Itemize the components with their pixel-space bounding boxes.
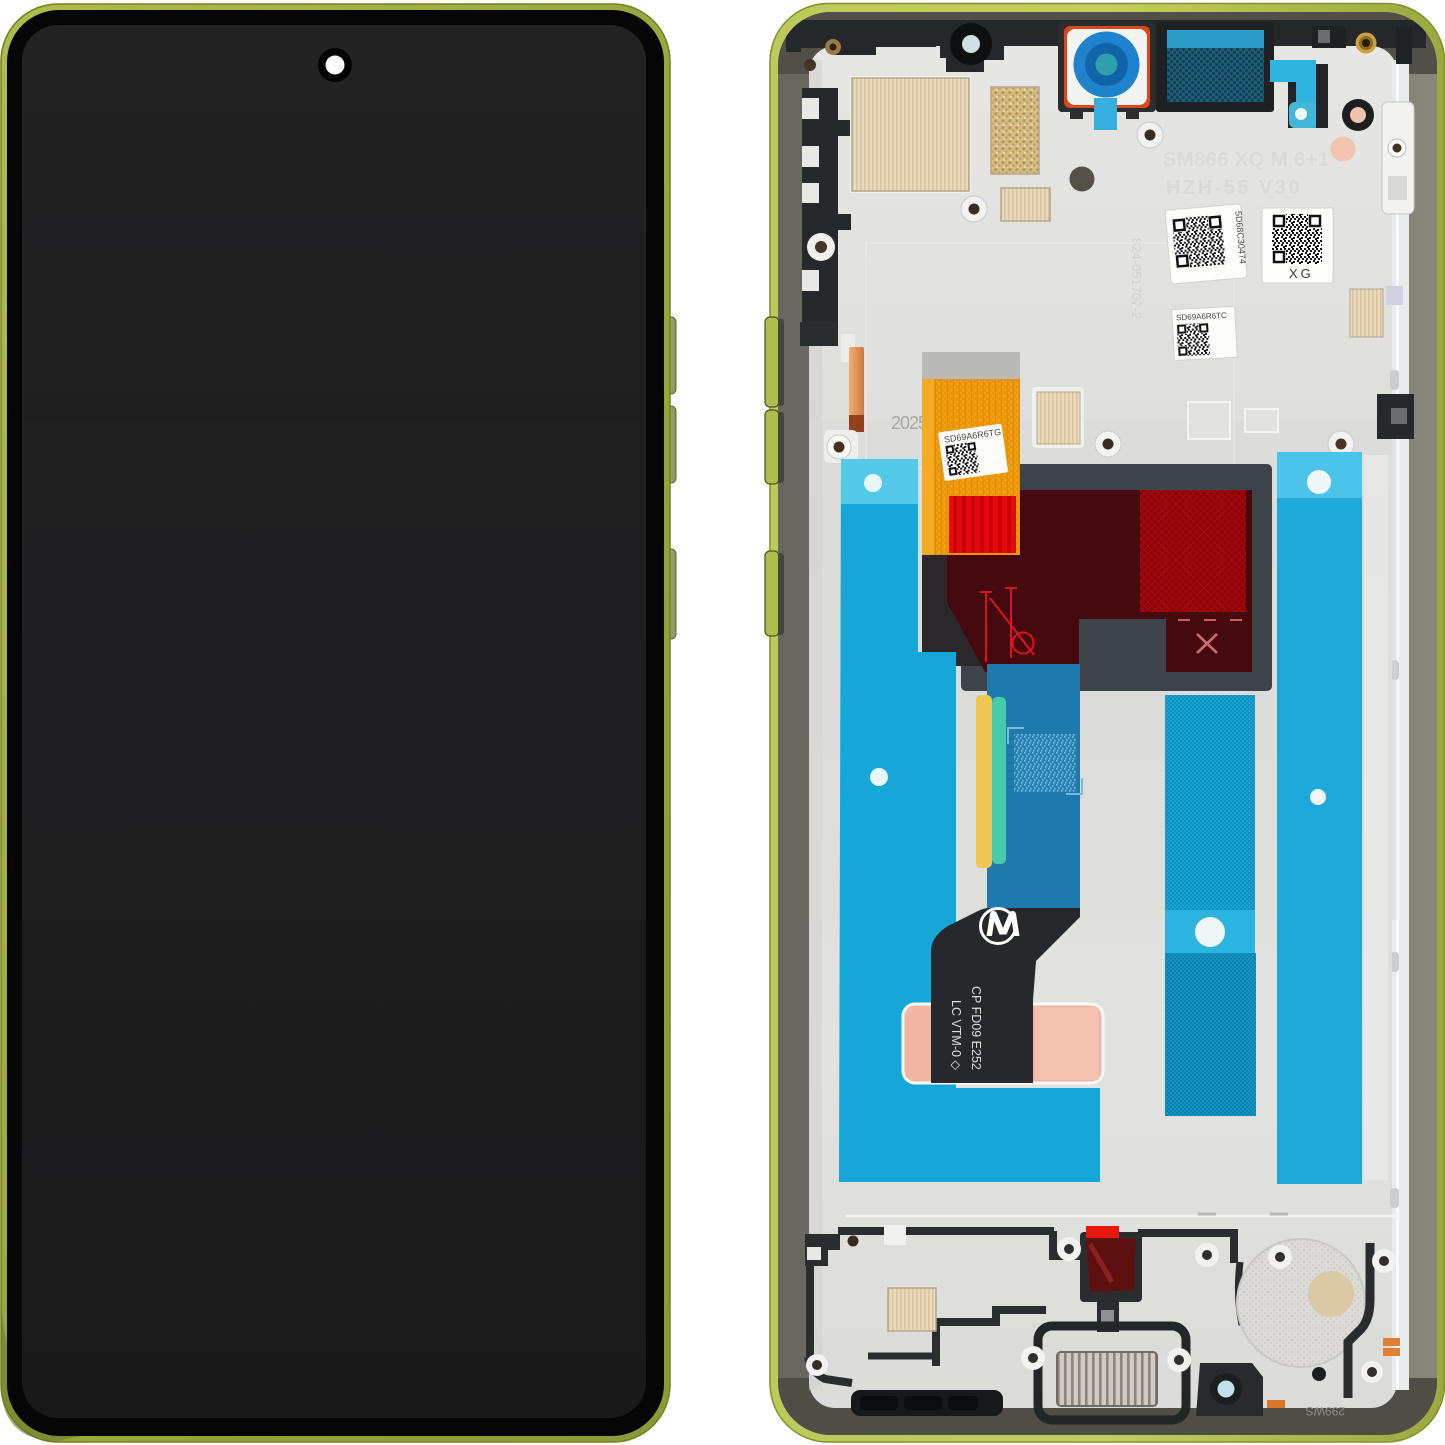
svg-text:LC VTM-0 ◇: LC VTM-0 ◇: [949, 1000, 963, 1070]
svg-text:CP FD09 E252: CP FD09 E252: [969, 986, 983, 1070]
svg-text:HZH-55 V30: HZH-55 V30: [1166, 177, 1302, 199]
svg-text:299WS: 299WS: [1306, 1404, 1345, 1418]
svg-text:SM866 XQ M 6+1: SM866 XQ M 6+1: [1163, 149, 1330, 171]
svg-text:824-051707-2: 824-051707-2: [1129, 238, 1144, 319]
svg-text:XG: XG: [1289, 266, 1314, 281]
